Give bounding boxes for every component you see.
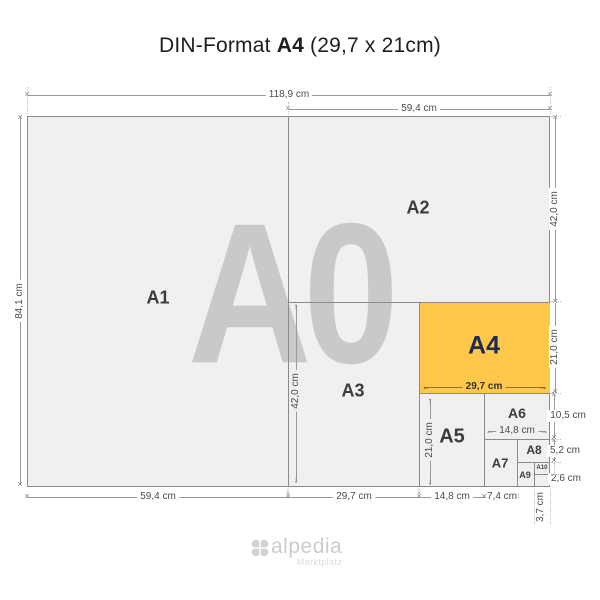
extline-right-4 [551,439,561,440]
dim-a3-width: 29,7 cm [333,491,375,503]
a0-watermark: A0 [188,179,391,409]
dim-total-width: 118,9 cm [266,89,312,101]
extline-right-6 [551,474,561,475]
label-a6: A6 [508,405,526,421]
dim-a6-width: 14,8 cm [496,425,538,437]
extline-a9-right [550,489,551,524]
extline-top-right [550,87,551,114]
arrow-left-icon: ← [486,427,495,436]
arrow-down-icon: ↓ [294,476,299,485]
dim-a0-height: 84,1 cm [14,280,26,322]
extline-right-3 [551,393,561,394]
dim-a6-height: 10,5 cm [547,410,589,422]
dim-a4-height: 21,0 cm [549,326,561,368]
arrow-down-icon: ↓ [286,487,291,496]
extline-top-left [27,87,28,114]
dim-end-icon: ✕ [17,482,23,489]
arrow-left-icon: ← [422,383,431,392]
arrow-up-icon: ↑ [428,397,433,406]
logo-name: alpedia [271,537,342,557]
title-format: A4 [277,34,304,57]
extline-right-5 [551,462,561,463]
divider-a5-right [484,393,485,487]
din-format-poster: DIN-Format A4 (29,7 x 21cm) A0 A1 A2 A3 … [0,0,600,600]
dim-end-icon: ✕ [24,494,30,501]
dim-a4-width: 29,7 cm [463,381,506,393]
dim-a1-width: 59,4 cm [137,491,179,503]
arrow-right-icon: → [539,383,548,392]
extline-right-2 [551,301,561,302]
dim-a2-height: 42,0 cm [549,188,561,230]
dim-a9-width: 3,7 cm [535,489,547,525]
label-a2: A2 [406,198,429,219]
label-a3: A3 [341,381,364,402]
arrow-down-icon: ↓ [417,487,422,496]
dim-end-icon: ✕ [17,115,23,122]
dim-a5-height: 21,0 cm [424,419,436,461]
page-title: DIN-Format A4 (29,7 x 21cm) [159,34,441,58]
label-a4: A4 [468,332,500,361]
extline-right-1 [551,116,561,117]
label-a1: A1 [146,288,169,309]
arrow-down-icon: ↓ [428,478,433,487]
divider-a3-right [419,302,420,487]
dim-a3-height: 42,0 cm [290,370,302,412]
label-a5: A5 [439,426,465,449]
divider-a7-right [517,439,518,487]
label-a10: A10 [536,465,547,471]
label-a7: A7 [492,456,509,471]
dim-a2-width: 59,4 cm [398,103,440,115]
dim-a7-width: 7,4 cm [486,491,518,503]
arrow-right-icon: → [540,427,549,436]
logo-tagline: Marktplatz [297,557,343,567]
label-a9: A9 [519,470,531,480]
label-a8: A8 [526,443,541,457]
dim-a8-height: 5,2 cm [547,445,583,457]
logo-text: alpedia Marktplatz [271,537,342,567]
dim-a5-width: 14,8 cm [431,491,473,503]
arrow-up-icon: ↑ [294,303,299,312]
logo-flower-icon [249,537,271,559]
title-prefix: DIN-Format [159,34,271,57]
logo: alpedia Marktplatz [249,537,342,567]
title-size: (29,7 x 21cm) [310,34,441,57]
extline-top-mid [288,102,289,114]
